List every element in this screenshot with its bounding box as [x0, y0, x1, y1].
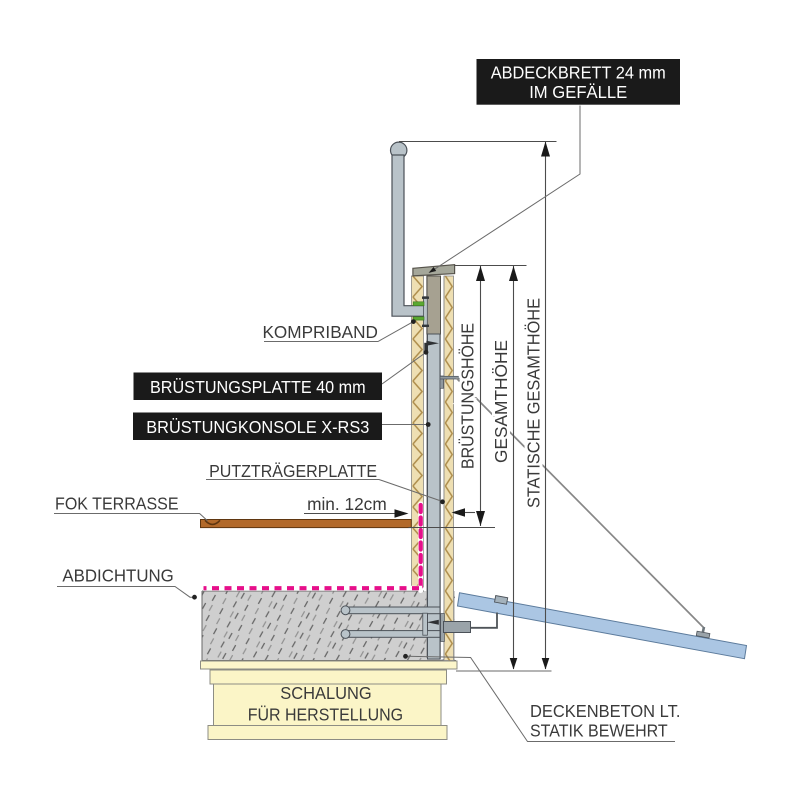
svg-text:FÜR HERSTELLUNG: FÜR HERSTELLUNG — [248, 704, 403, 724]
svg-text:KOMPRIBAND: KOMPRIBAND — [262, 322, 378, 342]
svg-text:ABDICHTUNG: ABDICHTUNG — [62, 565, 173, 585]
svg-text:DECKENBETON LT.: DECKENBETON LT. — [530, 701, 680, 721]
svg-text:IM GEFÄLLE: IM GEFÄLLE — [529, 82, 627, 102]
svg-text:STATISCHE GESAMTHÖHE: STATISCHE GESAMTHÖHE — [524, 298, 544, 508]
svg-text:min. 12cm: min. 12cm — [307, 494, 387, 514]
svg-text:ABDECKBRETT 24 mm: ABDECKBRETT 24 mm — [491, 63, 666, 83]
svg-text:BRÜSTUNGKONSOLE X-RS3: BRÜSTUNGKONSOLE X-RS3 — [146, 417, 369, 437]
svg-text:STATIK BEWEHRT: STATIK BEWEHRT — [530, 721, 668, 741]
svg-text:PUTZTRÄGERPLATTE: PUTZTRÄGERPLATTE — [209, 461, 377, 481]
svg-text:SCHALUNG: SCHALUNG — [280, 683, 372, 703]
svg-text:BRÜSTUNGSHÖHE: BRÜSTUNGSHÖHE — [458, 323, 478, 469]
svg-text:FOK TERRASSE: FOK TERRASSE — [55, 494, 179, 514]
svg-text:GESAMTHÖHE: GESAMTHÖHE — [491, 340, 511, 463]
svg-text:BRÜSTUNGSPLATTE 40 mm: BRÜSTUNGSPLATTE 40 mm — [150, 377, 366, 397]
